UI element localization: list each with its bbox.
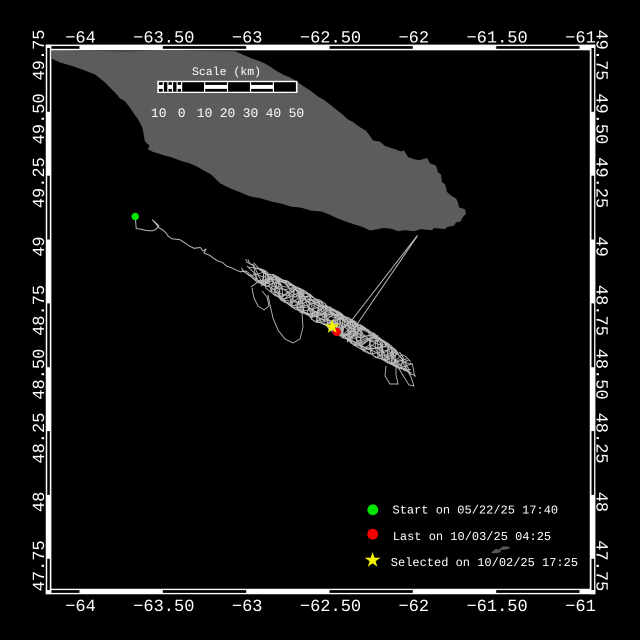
svg-text:49.50: 49.50 bbox=[31, 93, 50, 144]
svg-text:−61.50: −61.50 bbox=[466, 598, 527, 617]
svg-text:−62: −62 bbox=[398, 30, 429, 49]
svg-text:−63.50: −63.50 bbox=[133, 30, 194, 49]
svg-text:48: 48 bbox=[31, 492, 50, 512]
svg-text:10: 10 bbox=[197, 106, 213, 121]
svg-text:30: 30 bbox=[243, 106, 259, 121]
svg-text:49.75: 49.75 bbox=[591, 29, 610, 80]
svg-text:10: 10 bbox=[151, 106, 167, 121]
svg-text:−62: −62 bbox=[398, 598, 429, 617]
svg-text:48.25: 48.25 bbox=[31, 413, 50, 464]
svg-text:49: 49 bbox=[591, 236, 610, 256]
svg-text:Selected on 10/02/25 17:25: Selected on 10/02/25 17:25 bbox=[391, 556, 578, 570]
svg-text:49.25: 49.25 bbox=[591, 157, 610, 208]
svg-text:Start on 05/22/25 17:40: Start on 05/22/25 17:40 bbox=[393, 503, 559, 517]
svg-text:48.25: 48.25 bbox=[591, 413, 610, 464]
svg-text:−63: −63 bbox=[232, 598, 263, 617]
svg-text:−63.50: −63.50 bbox=[133, 598, 194, 617]
svg-text:47.75: 47.75 bbox=[591, 540, 610, 591]
svg-text:−64: −64 bbox=[65, 30, 96, 49]
svg-text:0: 0 bbox=[178, 106, 186, 121]
svg-text:49: 49 bbox=[31, 236, 50, 256]
svg-text:48.75: 48.75 bbox=[31, 285, 50, 336]
svg-text:48.75: 48.75 bbox=[591, 285, 610, 336]
svg-text:40: 40 bbox=[266, 106, 282, 121]
svg-text:49.25: 49.25 bbox=[31, 157, 50, 208]
svg-text:−61.50: −61.50 bbox=[466, 30, 527, 49]
svg-text:48.50: 48.50 bbox=[31, 349, 50, 400]
svg-text:−62.50: −62.50 bbox=[300, 30, 361, 49]
svg-text:49.50: 49.50 bbox=[591, 93, 610, 144]
svg-text:47.75: 47.75 bbox=[31, 540, 50, 591]
svg-text:48: 48 bbox=[591, 492, 610, 512]
svg-text:49.75: 49.75 bbox=[31, 29, 50, 80]
svg-text:−62.50: −62.50 bbox=[300, 598, 361, 617]
svg-text:Scale (km): Scale (km) bbox=[192, 66, 261, 79]
svg-text:−64: −64 bbox=[65, 598, 96, 617]
svg-text:48.50: 48.50 bbox=[591, 349, 610, 400]
svg-text:Last on 10/03/25 04:25: Last on 10/03/25 04:25 bbox=[393, 530, 551, 544]
svg-text:50: 50 bbox=[289, 106, 305, 121]
svg-text:−61: −61 bbox=[565, 598, 596, 617]
svg-text:20: 20 bbox=[220, 106, 236, 121]
svg-text:−63: −63 bbox=[232, 30, 263, 49]
